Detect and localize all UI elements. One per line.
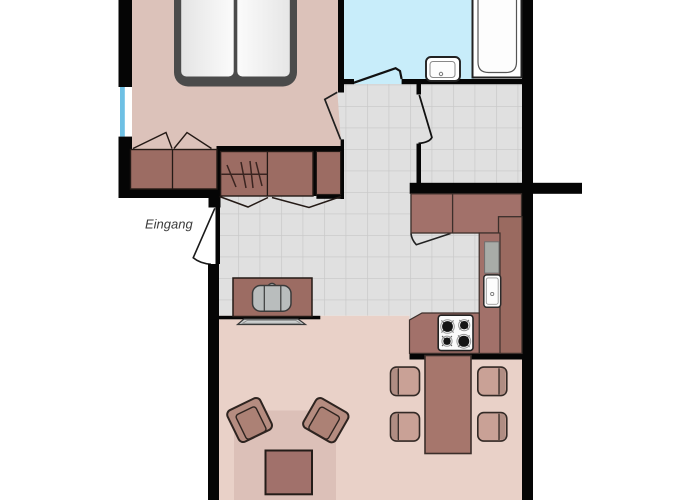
- svg-text:Eingang: Eingang: [145, 217, 193, 232]
